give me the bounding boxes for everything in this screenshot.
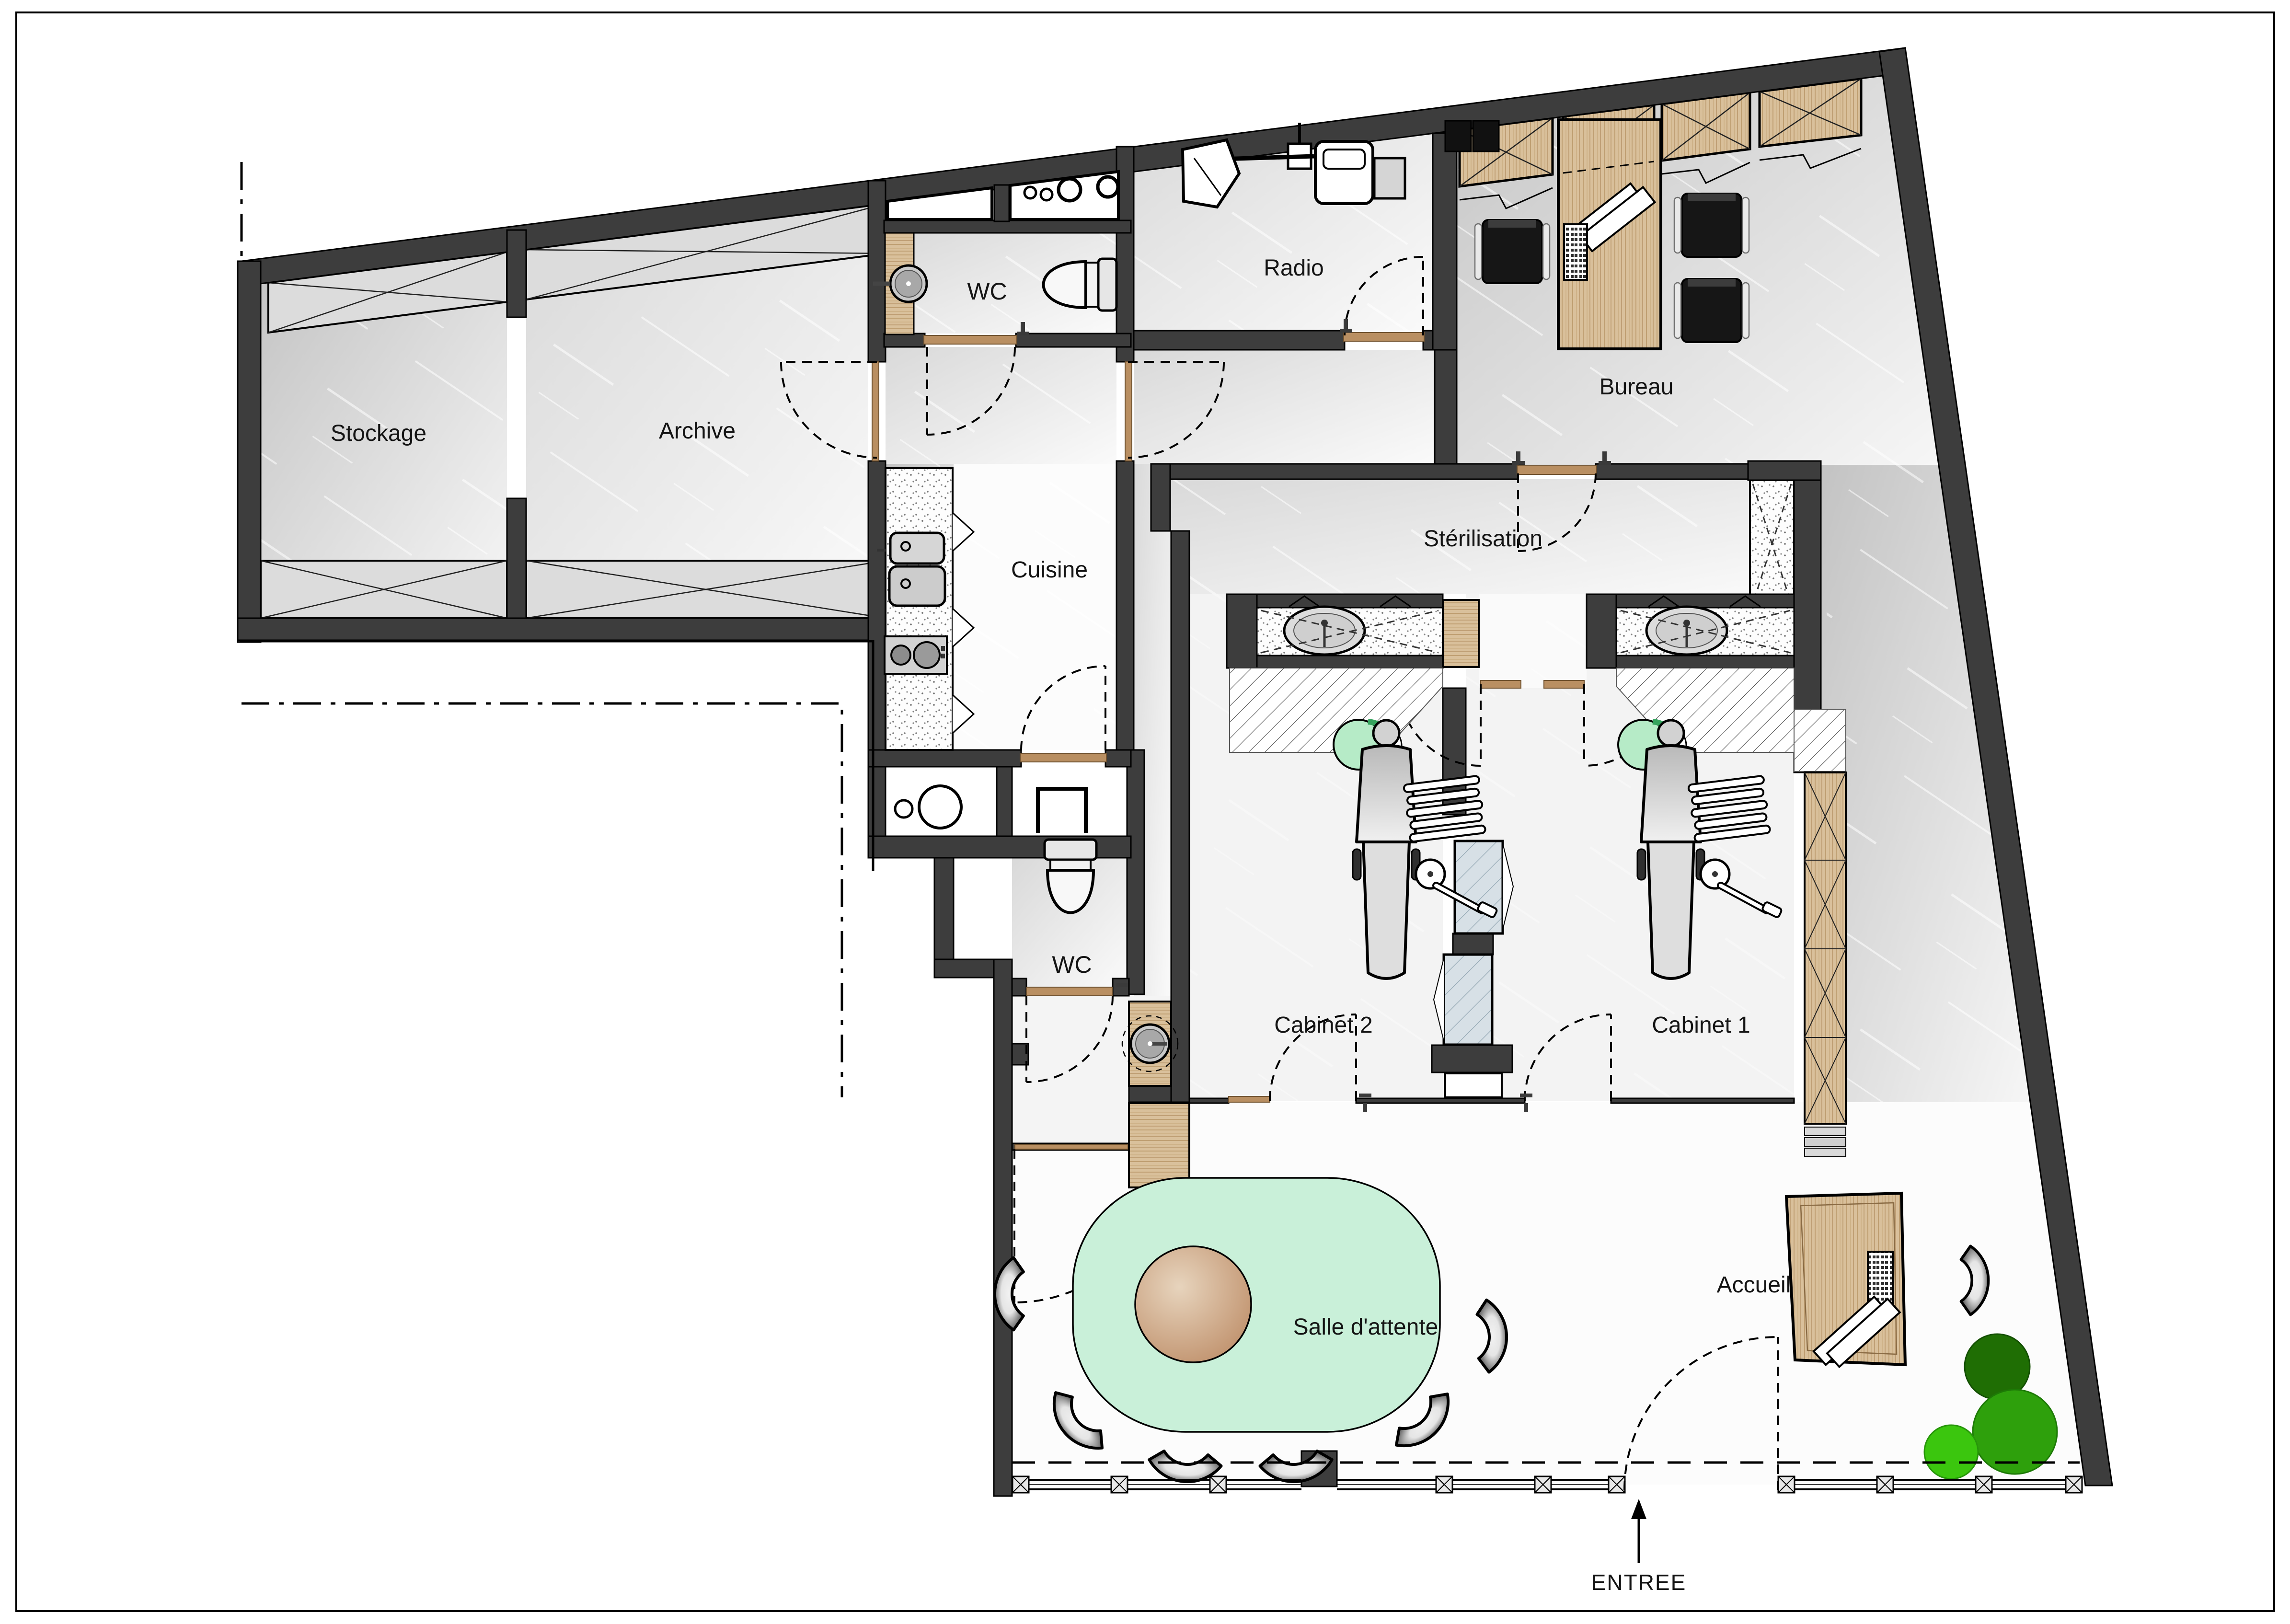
counter-end-wood bbox=[1443, 600, 1479, 667]
entrance-label: ENTREE bbox=[1591, 1570, 1687, 1595]
room-label-wc-bottom: WC bbox=[1052, 951, 1092, 978]
laundry-niche-right bbox=[1012, 767, 1127, 836]
waiting-rug bbox=[1073, 1178, 1440, 1432]
office-chair bbox=[1475, 220, 1550, 283]
room-label-sterilisation: Stérilisation bbox=[1424, 526, 1542, 552]
kitchen-counter bbox=[886, 468, 953, 750]
floor-plan-page: ENTREE Stockage Archive WC Radio Bureau … bbox=[0, 0, 2290, 1624]
waiting-table bbox=[1135, 1246, 1251, 1362]
room-label-archive: Archive bbox=[659, 418, 736, 444]
wall-left bbox=[238, 261, 261, 642]
room-label-salle-attente: Salle d'attente bbox=[1293, 1314, 1438, 1340]
wall-stockage-bottom bbox=[238, 618, 906, 640]
room-label-cabinet-1: Cabinet 1 bbox=[1652, 1013, 1750, 1038]
wall-lower-wing bbox=[994, 959, 1012, 1496]
front-hall-floor bbox=[1134, 350, 1435, 464]
room-label-bureau: Bureau bbox=[1600, 374, 1674, 400]
office-chair bbox=[1674, 194, 1749, 257]
room-label-accueil: Accueil bbox=[1717, 1272, 1791, 1298]
room-label-cuisine: Cuisine bbox=[1011, 557, 1088, 583]
room-label-wc-top: WC bbox=[967, 278, 1007, 305]
room-label-stockage: Stockage bbox=[331, 421, 426, 446]
room-label-cabinet-2: Cabinet 2 bbox=[1274, 1013, 1372, 1038]
floor-plan-svg: ENTREE Stockage Archive WC Radio Bureau … bbox=[0, 0, 2290, 1624]
wood-cabinet-column bbox=[1805, 772, 1846, 1157]
counter-sink-icon bbox=[1646, 607, 1727, 655]
office-chair bbox=[1674, 279, 1749, 342]
keyboard-icon bbox=[1564, 224, 1587, 280]
room-label-radio: Radio bbox=[1264, 255, 1323, 281]
cooktop-icon bbox=[885, 636, 947, 674]
